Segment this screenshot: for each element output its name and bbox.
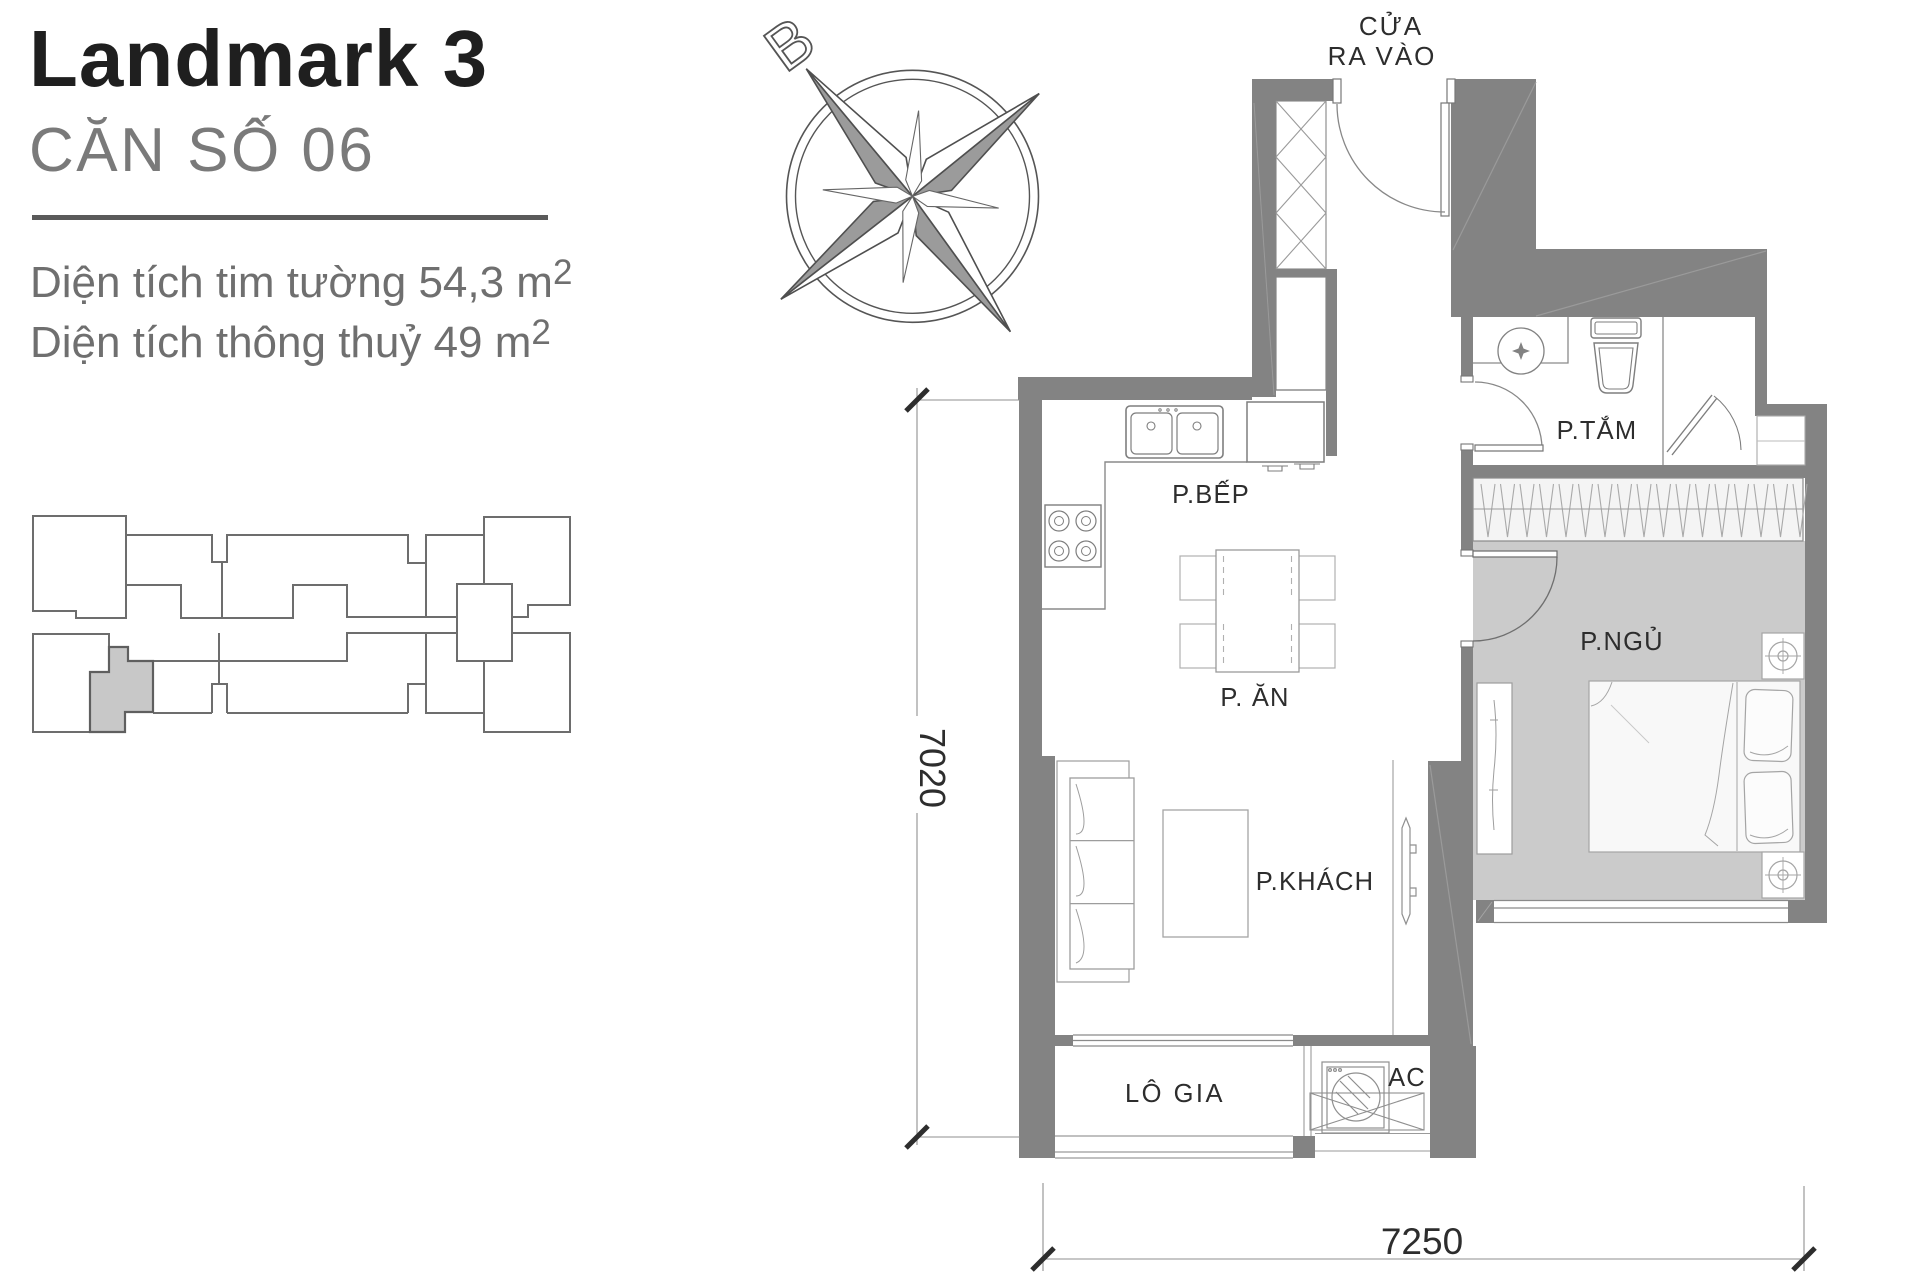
- svg-text:CĂN SỐ 06: CĂN SỐ 06: [29, 116, 375, 185]
- svg-text:P. ĂN: P. ĂN: [1220, 683, 1289, 712]
- svg-text:P.KHÁCH: P.KHÁCH: [1256, 867, 1374, 896]
- svg-text:P.BẾP: P.BẾP: [1172, 480, 1250, 509]
- svg-text:AC: AC: [1388, 1064, 1426, 1092]
- svg-text:LÔ GIA: LÔ GIA: [1125, 1079, 1225, 1108]
- svg-text:Diện tích tim tường 54,3 m2: Diện tích tim tường 54,3 m2: [30, 253, 572, 307]
- svg-text:RA VÀO: RA VÀO: [1328, 41, 1437, 71]
- svg-text:Landmark 3: Landmark 3: [29, 14, 488, 103]
- svg-text:Diện tích thông thuỷ 49 m2: Diện tích thông thuỷ 49 m2: [30, 313, 551, 367]
- svg-text:P.NGỦ: P.NGỦ: [1580, 626, 1663, 656]
- svg-text:7020: 7020: [912, 728, 953, 808]
- svg-text:CỬA: CỬA: [1359, 10, 1423, 41]
- svg-text:7250: 7250: [1381, 1221, 1463, 1262]
- svg-text:P.TẮM: P.TẮM: [1557, 415, 1638, 445]
